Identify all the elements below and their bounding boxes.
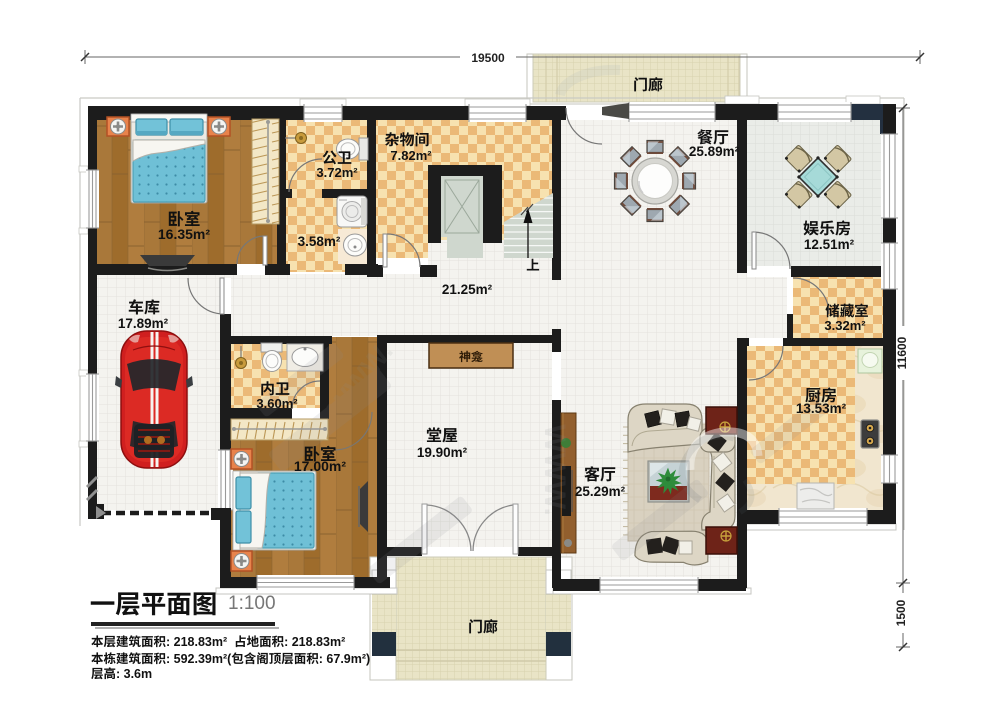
svg-text:3.60m²: 3.60m² [256, 396, 298, 411]
svg-text:1500: 1500 [894, 599, 908, 626]
svg-text:17.89m²: 17.89m² [118, 316, 169, 331]
svg-text:7.82m²: 7.82m² [390, 148, 432, 163]
svg-text:16.35m²: 16.35m² [158, 226, 210, 242]
svg-text:: 218.83m²: : 218.83m² [166, 635, 234, 649]
svg-text:19500: 19500 [471, 51, 505, 65]
svg-text:19.90m²: 19.90m² [417, 445, 468, 460]
svg-text:3.58m²: 3.58m² [298, 234, 341, 249]
svg-text:25.89m²: 25.89m² [689, 144, 740, 159]
svg-text:: 218.83m²: : 218.83m² [284, 635, 345, 649]
svg-text:11600: 11600 [895, 336, 909, 369]
svg-text:17.00m²: 17.00m² [294, 458, 346, 474]
svg-text:WWW.: WWW. [538, 424, 571, 516]
svg-text:: 3.6m: : 3.6m [116, 667, 152, 681]
svg-text:12.51m²: 12.51m² [804, 237, 855, 252]
svg-text:3.72m²: 3.72m² [316, 165, 358, 180]
svg-text:13.53m²: 13.53m² [796, 401, 847, 416]
svg-text:1:100: 1:100 [228, 593, 276, 614]
svg-text:3.32m²: 3.32m² [824, 318, 866, 333]
svg-text:25.29m²: 25.29m² [575, 484, 626, 499]
svg-text:21.25m²: 21.25m² [442, 282, 493, 297]
svg-text:: 592.39m²(: : 592.39m²( [166, 652, 232, 666]
svg-text:: 67.9m²): : 67.9m²) [319, 652, 370, 666]
